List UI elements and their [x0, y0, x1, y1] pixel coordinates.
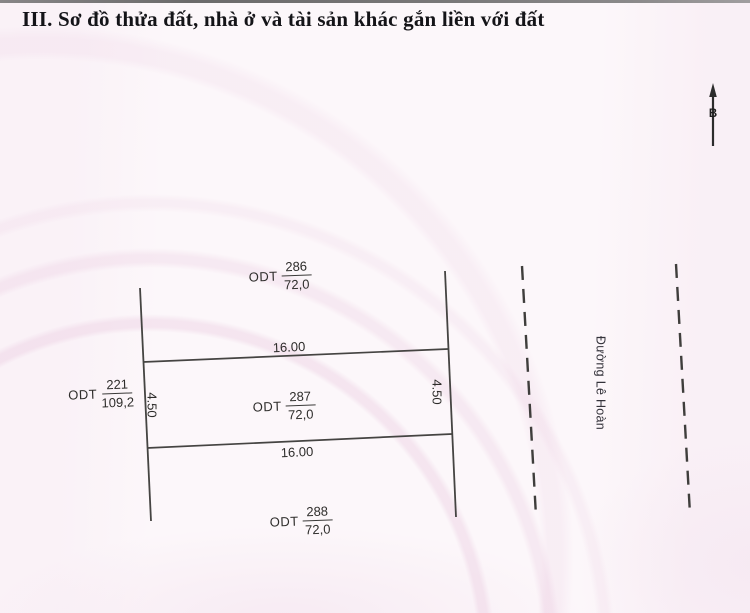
boundary-right-line [445, 271, 456, 517]
parcel-number: 288 [302, 504, 332, 521]
parcel-area: 72,0 [284, 275, 310, 291]
dimension-left-depth: 4.50 [146, 392, 159, 417]
parcel-label-287: ODT 287 72,0 [252, 389, 316, 422]
dimension-bottom-width: 16.00 [280, 445, 313, 459]
parcel-number: 221 [102, 377, 132, 394]
parcel-label-286: ODT 286 72,0 [248, 259, 312, 292]
parcel-label-221: ODT 221 109,2 [68, 377, 135, 410]
parcel-fraction: 287 72,0 [285, 389, 316, 421]
land-diagram-page: III. Sơ đồ thửa đất, nhà ở và tài sản kh… [0, 0, 750, 613]
parcel-area: 109,2 [101, 393, 134, 409]
land-use-code: ODT [269, 515, 298, 529]
parcel-fraction: 288 72,0 [302, 504, 333, 536]
north-label: B [699, 109, 727, 121]
parcel-fraction: 286 72,0 [281, 259, 312, 291]
parcel-area: 72,0 [288, 405, 314, 421]
road-edge-right-dashed-line [676, 264, 690, 514]
parcel-number: 286 [281, 259, 311, 276]
parcel-label-288: ODT 288 72,0 [269, 504, 333, 537]
road-edge-left-dashed-line [522, 266, 536, 516]
dimension-top-width: 16.00 [272, 340, 305, 354]
dimension-right-depth: 4.50 [431, 379, 444, 404]
land-use-code: ODT [252, 400, 281, 414]
parcel-fraction: 221 109,2 [101, 377, 135, 409]
land-use-code: ODT [248, 270, 277, 284]
street-name-label: Đường Lê Hoàn [594, 336, 607, 430]
parcel-number: 287 [285, 389, 315, 406]
parcel-boundary-lines [0, 0, 750, 613]
parcel-area: 72,0 [305, 520, 331, 536]
land-use-code: ODT [68, 388, 97, 402]
north-arrow: B [699, 80, 727, 152]
